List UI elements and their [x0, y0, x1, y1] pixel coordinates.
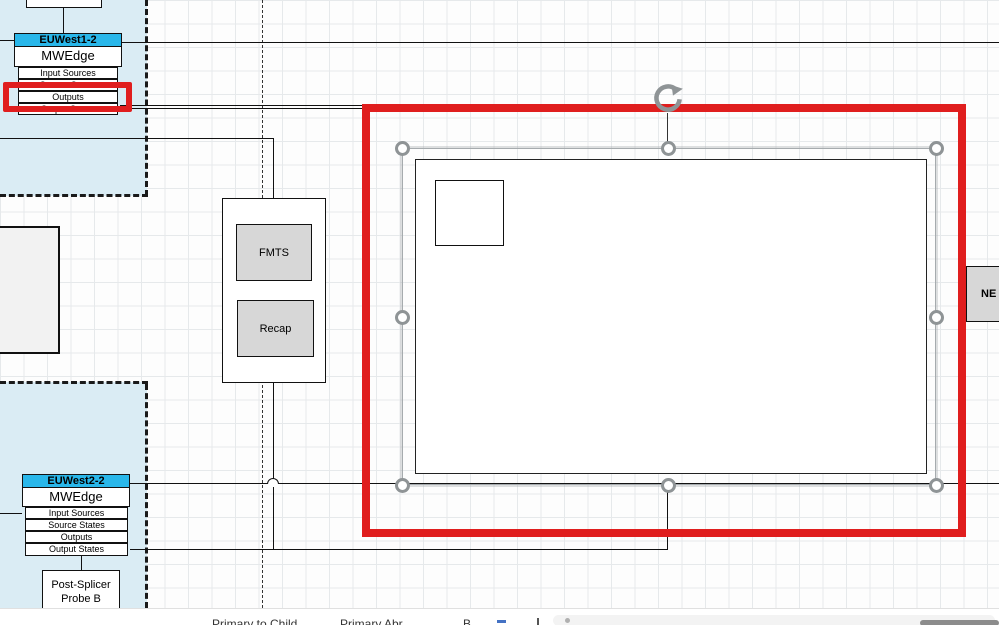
node-euwest2-row-output-states[interactable]: Output States — [25, 543, 128, 556]
diagram-canvas[interactable]: EUWest1-2 MWEdge Input Sources Source St… — [0, 0, 999, 608]
container-border-bottom-top — [0, 194, 148, 197]
partial-node-top[interactable] — [26, 0, 102, 8]
connector-line[interactable] — [63, 8, 64, 33]
node-euwest1-header[interactable]: EUWest1-2 — [14, 33, 122, 47]
line-hop — [267, 478, 279, 484]
node-euwest1-type[interactable]: MWEdge — [14, 47, 122, 67]
node-euwest2-type[interactable]: MWEdge — [22, 488, 130, 507]
selection-handle-top-middle[interactable] — [661, 141, 676, 156]
container-border-right-top — [145, 0, 148, 196]
selection-handle-bottom-right[interactable] — [929, 478, 944, 493]
selection-bounding-box[interactable] — [402, 148, 936, 485]
pipeline-recap-box[interactable]: Recap — [237, 300, 314, 357]
connector-line[interactable] — [132, 108, 364, 109]
selection-handle-middle-right[interactable] — [929, 310, 944, 325]
connector-line[interactable] — [273, 138, 274, 198]
selection-handle-top-left[interactable] — [395, 141, 410, 156]
connector-line[interactable] — [130, 549, 668, 550]
node-euwest2-row-outputs[interactable]: Outputs — [25, 531, 128, 543]
connector-line[interactable] — [81, 555, 82, 571]
connector-line[interactable] — [0, 40, 14, 41]
pipeline-fmts-box[interactable]: FMTS — [236, 224, 312, 281]
container-border-right-bottom — [145, 384, 148, 608]
add-page-button[interactable] — [497, 620, 506, 623]
container-border-top-bottom — [0, 381, 148, 384]
bottom-bar: Primary to Child Primary Abr B — [0, 608, 999, 625]
node-euwest2-row-source-states[interactable]: Source States — [25, 519, 128, 531]
selection-handle-middle-left[interactable] — [395, 310, 410, 325]
selection-handle-bottom-left[interactable] — [395, 478, 410, 493]
node-euwest2-row-input-sources[interactable]: Input Sources — [25, 507, 128, 519]
horizontal-scrollbar-thumb[interactable] — [920, 620, 999, 625]
node-post-splicer-probe-b[interactable]: Post-Splicer Probe B — [42, 570, 120, 608]
partial-node-left[interactable] — [0, 226, 60, 354]
red-highlight-outputs — [3, 82, 132, 112]
page-tab-1[interactable]: Primary to Child — [212, 617, 297, 625]
scrollbar-grip-icon — [565, 618, 570, 623]
connector-line[interactable] — [0, 513, 22, 514]
selection-handle-bottom-middle[interactable] — [661, 478, 676, 493]
connector-line[interactable] — [273, 383, 274, 549]
connector-line[interactable] — [122, 42, 999, 43]
node-euwest1-row-input-sources[interactable]: Input Sources — [18, 67, 118, 79]
connector-line[interactable] — [120, 105, 364, 106]
selection-handle-top-right[interactable] — [929, 141, 944, 156]
connector-line[interactable] — [0, 138, 274, 139]
rotation-handle-icon[interactable] — [651, 82, 685, 116]
tab-separator — [537, 618, 539, 625]
page-tab-2[interactable]: Primary Abr — [340, 617, 403, 625]
node-euwest2-header[interactable]: EUWest2-2 — [22, 474, 130, 488]
page-tab-3[interactable]: B — [463, 617, 471, 625]
node-ne[interactable]: NE — [966, 266, 999, 322]
